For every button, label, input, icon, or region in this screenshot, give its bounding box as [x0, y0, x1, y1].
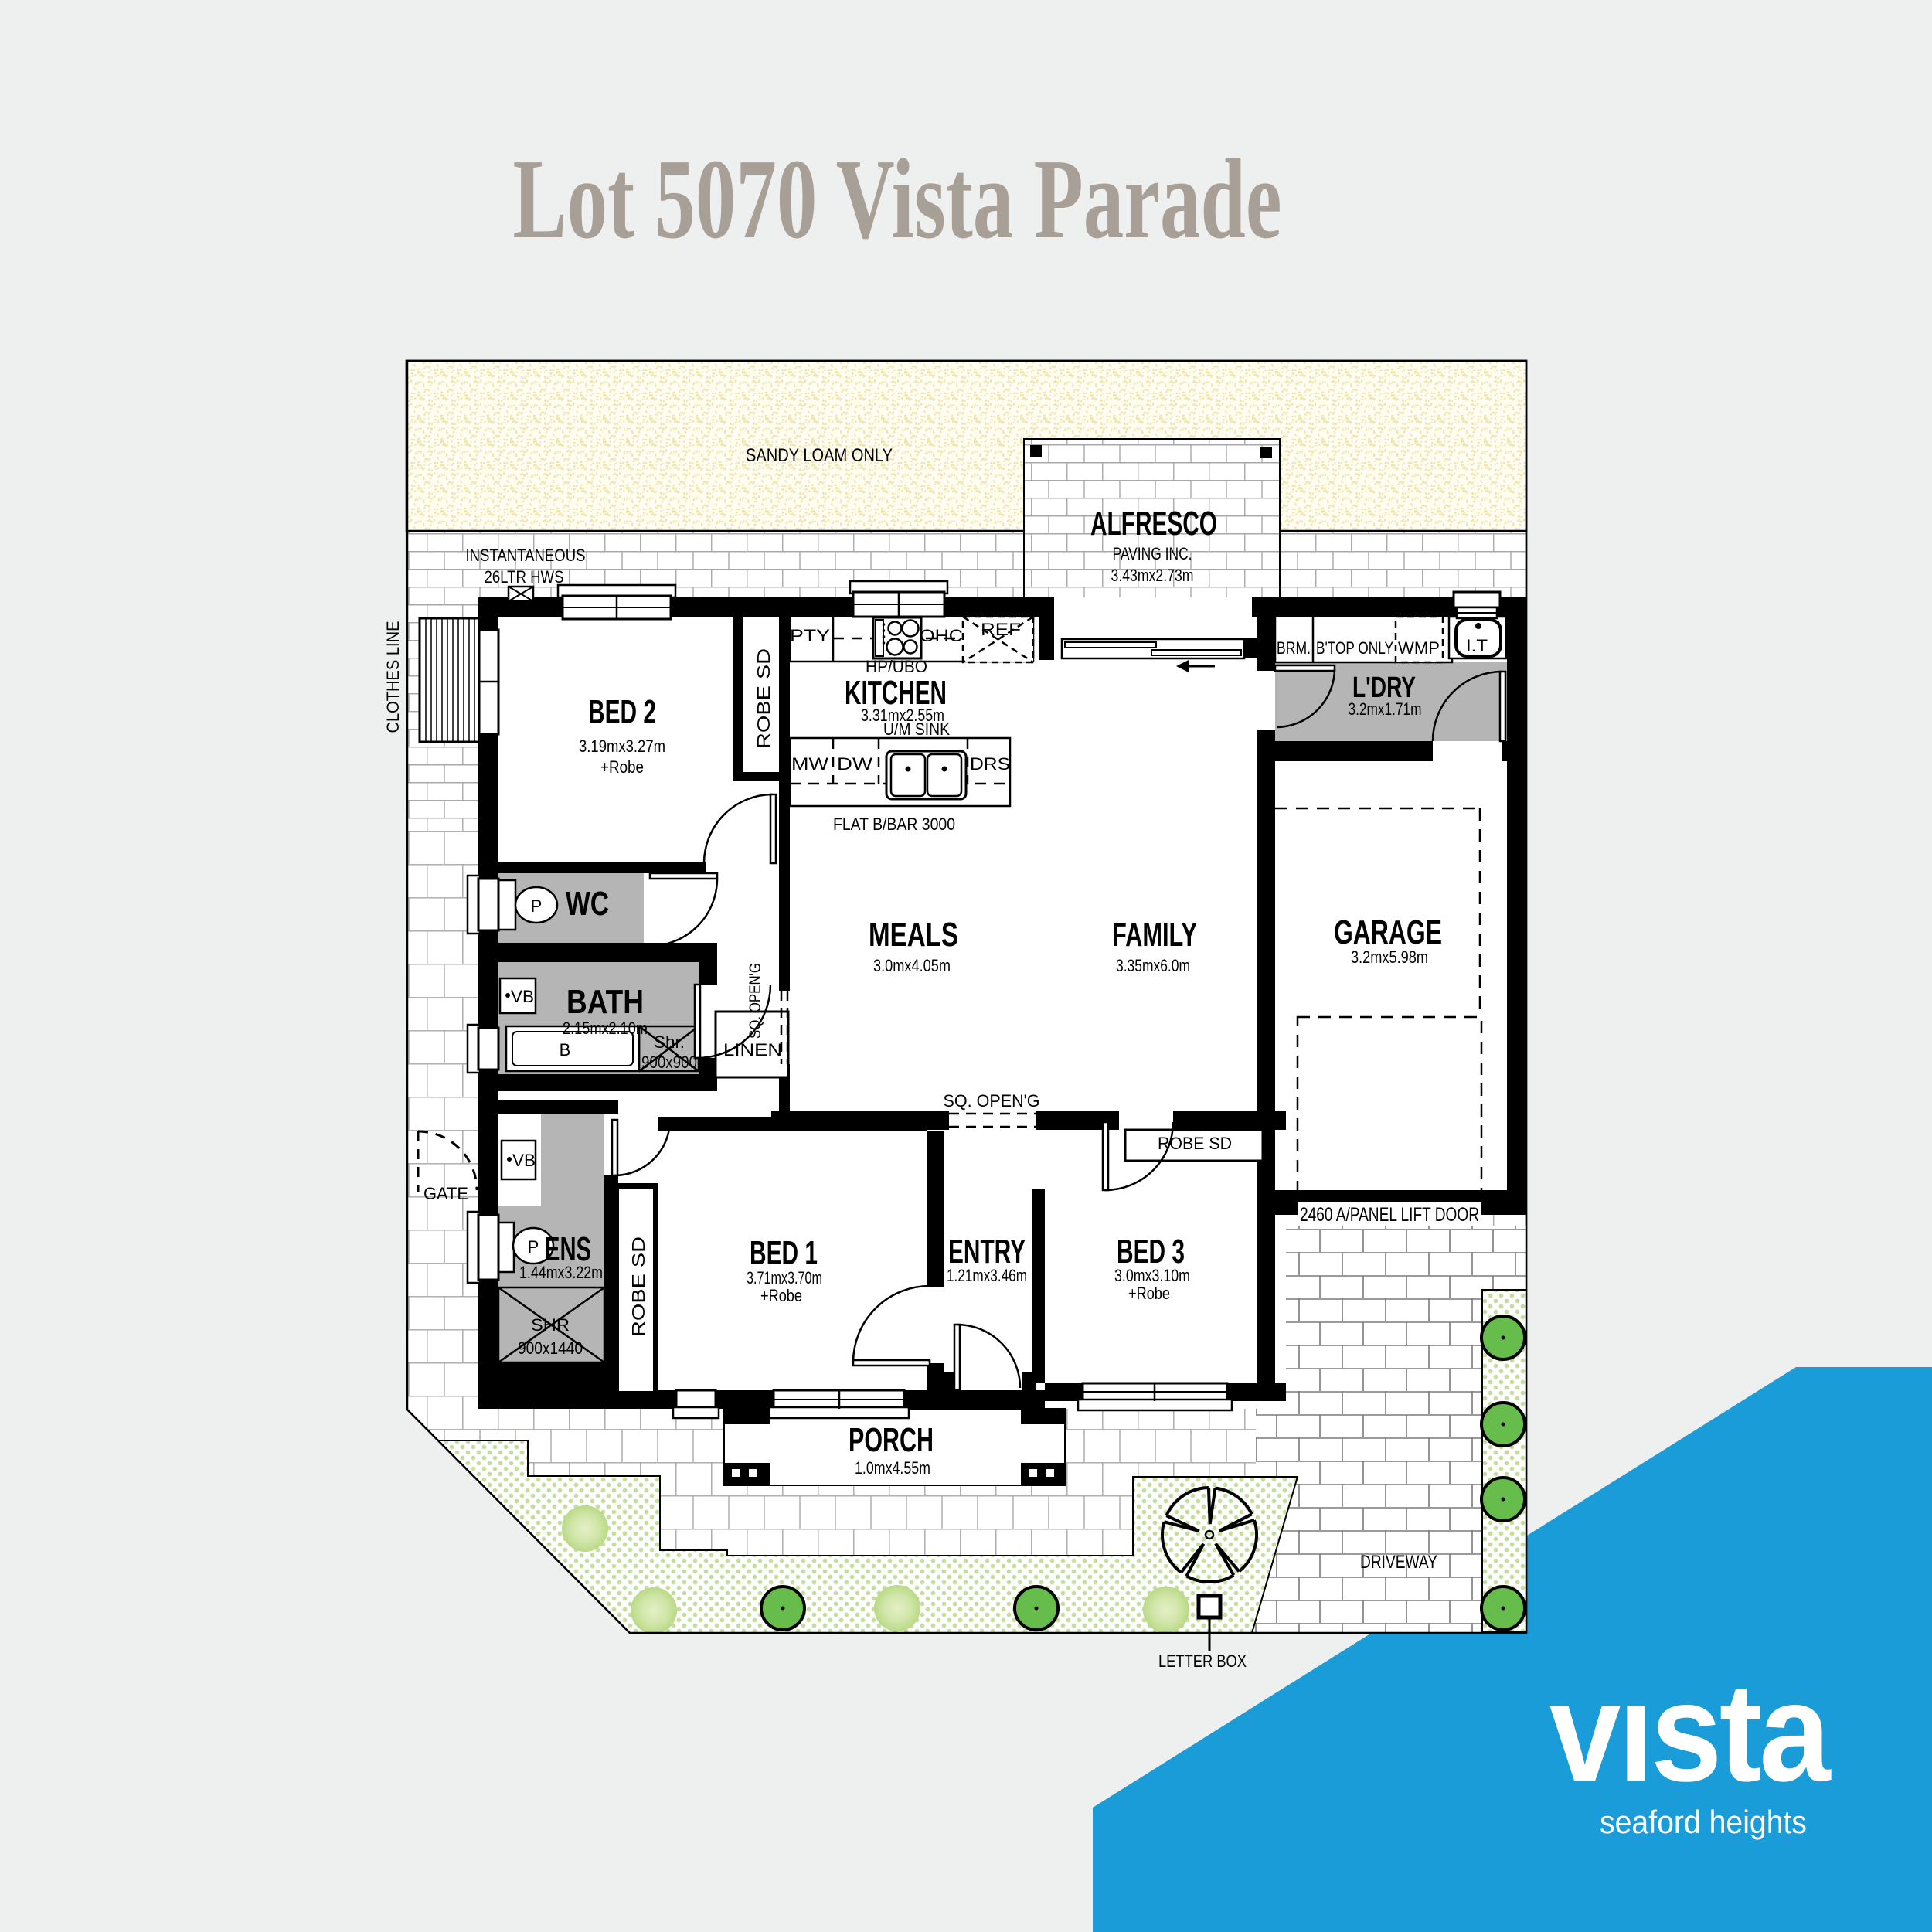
- svg-text:3.71mx3.70m: 3.71mx3.70m: [747, 1268, 822, 1287]
- svg-text:3.35mx6.0m: 3.35mx6.0m: [1116, 956, 1190, 975]
- svg-text:WC: WC: [566, 885, 609, 923]
- svg-text:vısta: vısta: [1549, 1653, 1832, 1811]
- svg-text:FAMILY: FAMILY: [1112, 916, 1197, 954]
- svg-text:PORCH: PORCH: [849, 1421, 934, 1459]
- svg-text:OHC: OHC: [920, 626, 963, 645]
- svg-text:DRIVEWAY: DRIVEWAY: [1360, 1552, 1437, 1573]
- svg-text:3.0mx3.10m: 3.0mx3.10m: [1114, 1266, 1190, 1285]
- svg-text:+Robe: +Robe: [1128, 1284, 1170, 1303]
- svg-text:WMP: WMP: [1398, 638, 1440, 658]
- svg-text:26LTR HWS: 26LTR HWS: [485, 567, 564, 587]
- svg-text:2460 A/PANEL LIFT DOOR: 2460 A/PANEL LIFT DOOR: [1300, 1204, 1479, 1226]
- svg-text:P: P: [528, 1237, 539, 1257]
- svg-text:3.2mx1.71m: 3.2mx1.71m: [1349, 699, 1422, 719]
- svg-text:BED 3: BED 3: [1117, 1233, 1185, 1270]
- svg-text:PAVING INC.: PAVING INC.: [1113, 544, 1192, 563]
- svg-text:GATE: GATE: [423, 1184, 468, 1203]
- svg-text:900x900: 900x900: [641, 1053, 697, 1072]
- svg-text:DW: DW: [837, 754, 872, 774]
- svg-text:BED 1: BED 1: [750, 1234, 818, 1272]
- svg-text:SHR: SHR: [531, 1315, 570, 1335]
- svg-text:PTY: PTY: [790, 626, 830, 645]
- svg-text:GARAGE: GARAGE: [1334, 913, 1442, 951]
- svg-text:3.2mx5.98m: 3.2mx5.98m: [1351, 947, 1428, 967]
- svg-text:SQ. OPEN'G: SQ. OPEN'G: [747, 963, 764, 1039]
- svg-text:ROBE SD: ROBE SD: [628, 1236, 648, 1337]
- svg-text:1.44mx3.22m: 1.44mx3.22m: [519, 1263, 603, 1282]
- svg-text:P: P: [531, 896, 543, 916]
- svg-text:MEALS: MEALS: [869, 916, 958, 954]
- svg-text:Lot 5070 Vista Parade: Lot 5070 Vista Parade: [513, 136, 1282, 263]
- svg-text:+Robe: +Robe: [600, 757, 644, 777]
- svg-text:CLOTHES LINE: CLOTHES LINE: [383, 621, 403, 733]
- svg-text:VB: VB: [512, 1151, 536, 1170]
- svg-text:U/M SINK: U/M SINK: [883, 719, 950, 739]
- svg-text:INSTANTANEOUS: INSTANTANEOUS: [466, 546, 586, 565]
- svg-text:VB: VB: [511, 987, 534, 1006]
- svg-text:B'TOP ONLY: B'TOP ONLY: [1316, 638, 1393, 658]
- svg-text:1.0mx4.55m: 1.0mx4.55m: [855, 1458, 930, 1478]
- svg-text:DRS: DRS: [970, 754, 1010, 774]
- svg-text:LETTER BOX: LETTER BOX: [1158, 1651, 1247, 1671]
- svg-text:seaford heights: seaford heights: [1600, 1804, 1807, 1840]
- svg-text:+Robe: +Robe: [760, 1286, 802, 1305]
- svg-text:MW: MW: [791, 754, 828, 774]
- svg-text:BRM.: BRM.: [1277, 638, 1311, 658]
- svg-text:I.T: I.T: [1466, 636, 1488, 655]
- svg-text:BED 2: BED 2: [588, 693, 656, 731]
- svg-text:900x1440: 900x1440: [518, 1338, 583, 1358]
- svg-text:3.0mx4.05m: 3.0mx4.05m: [873, 956, 951, 975]
- svg-text:SQ. OPEN'G: SQ. OPEN'G: [944, 1091, 1040, 1111]
- svg-text:2.15mx2.10m: 2.15mx2.10m: [563, 1019, 648, 1038]
- svg-text:Shr.: Shr.: [654, 1032, 685, 1052]
- svg-text:HP/UBO: HP/UBO: [866, 657, 927, 676]
- svg-text:BATH: BATH: [566, 983, 644, 1021]
- svg-text:ALFRESCO: ALFRESCO: [1090, 505, 1217, 543]
- svg-text:SANDY LOAM ONLY: SANDY LOAM ONLY: [746, 445, 893, 466]
- svg-text:ENTRY: ENTRY: [948, 1233, 1026, 1270]
- svg-text:1.21mx3.46m: 1.21mx3.46m: [947, 1266, 1027, 1285]
- svg-text:REF: REF: [981, 620, 1021, 639]
- svg-text:ROBE SD: ROBE SD: [753, 648, 774, 749]
- svg-text:FLAT B/BAR 3000: FLAT B/BAR 3000: [833, 815, 955, 834]
- svg-text:B: B: [560, 1040, 571, 1060]
- svg-text:3.43mx2.73m: 3.43mx2.73m: [1111, 566, 1194, 585]
- svg-text:3.19mx3.27m: 3.19mx3.27m: [579, 736, 665, 756]
